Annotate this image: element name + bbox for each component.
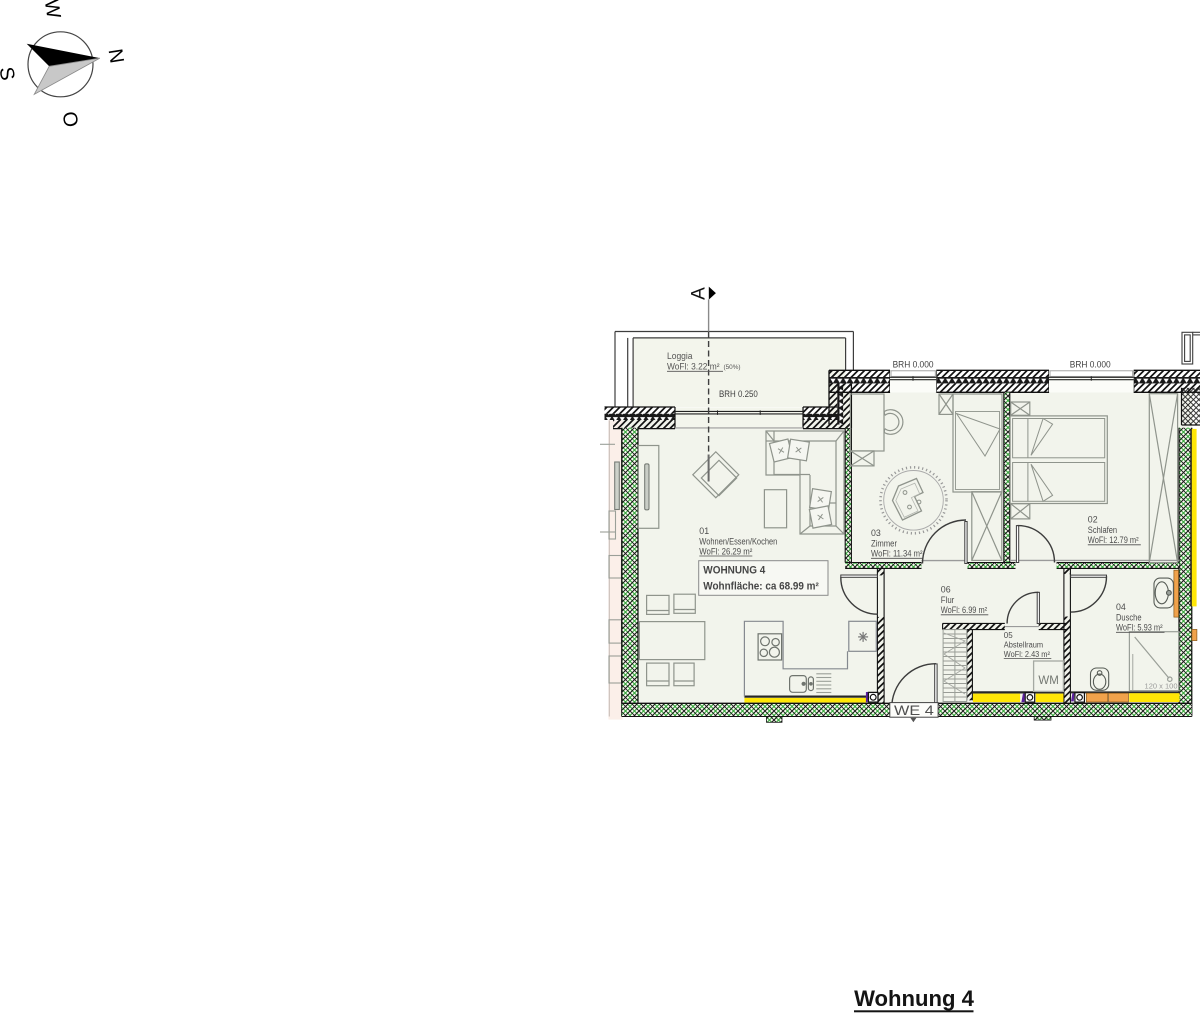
svg-text:WoFl: 26.29 m²: WoFl: 26.29 m² (699, 546, 752, 556)
svg-text:WoFl: 2.43 m²: WoFl: 2.43 m² (1004, 650, 1050, 659)
svg-text:Wohnfläche: ca 68.99 m²: Wohnfläche: ca 68.99 m² (703, 581, 819, 593)
svg-text:WoFl: 5.93 m²: WoFl: 5.93 m² (1116, 623, 1163, 633)
svg-text:WM: WM (1038, 675, 1058, 687)
svg-text:WOHNUNG 4: WOHNUNG 4 (703, 565, 765, 577)
svg-text:Wohnung 4: Wohnung 4 (854, 986, 975, 1011)
svg-text:(50%): (50%) (724, 364, 741, 371)
svg-text:03: 03 (871, 528, 881, 538)
svg-text:BRH 0.000: BRH 0.000 (893, 360, 934, 370)
svg-text:Loggia: Loggia (667, 351, 693, 361)
svg-text:W: W (40, 0, 65, 20)
svg-text:WoFl: 6.99 m²: WoFl: 6.99 m² (941, 605, 987, 615)
svg-text:Flur: Flur (941, 595, 955, 605)
svg-text:WoFl: 11.34 m²: WoFl: 11.34 m² (871, 549, 923, 559)
svg-text:WE 4: WE 4 (894, 703, 934, 718)
svg-text:Zimmer: Zimmer (871, 538, 897, 548)
svg-text:Dusche: Dusche (1116, 612, 1142, 622)
svg-text:120 x 100: 120 x 100 (1145, 682, 1178, 691)
svg-text:WoFl: 12.79 m²: WoFl: 12.79 m² (1088, 535, 1139, 545)
svg-text:04: 04 (1116, 602, 1126, 612)
svg-text:02: 02 (1088, 515, 1098, 525)
svg-text:A: A (689, 287, 710, 300)
svg-text:01: 01 (699, 526, 709, 536)
svg-text:Wohnen/Essen/Kochen: Wohnen/Essen/Kochen (699, 536, 777, 546)
svg-text:Abstellraum: Abstellraum (1004, 640, 1044, 649)
svg-text:Schlafen: Schlafen (1088, 525, 1117, 535)
svg-text:06: 06 (941, 585, 951, 595)
svg-text:WoFl: 3.22 m²: WoFl: 3.22 m² (667, 362, 720, 372)
svg-text:05: 05 (1004, 631, 1013, 640)
svg-text:BRH 0.250: BRH 0.250 (719, 389, 758, 399)
svg-text:BRH 0.000: BRH 0.000 (1070, 360, 1111, 370)
